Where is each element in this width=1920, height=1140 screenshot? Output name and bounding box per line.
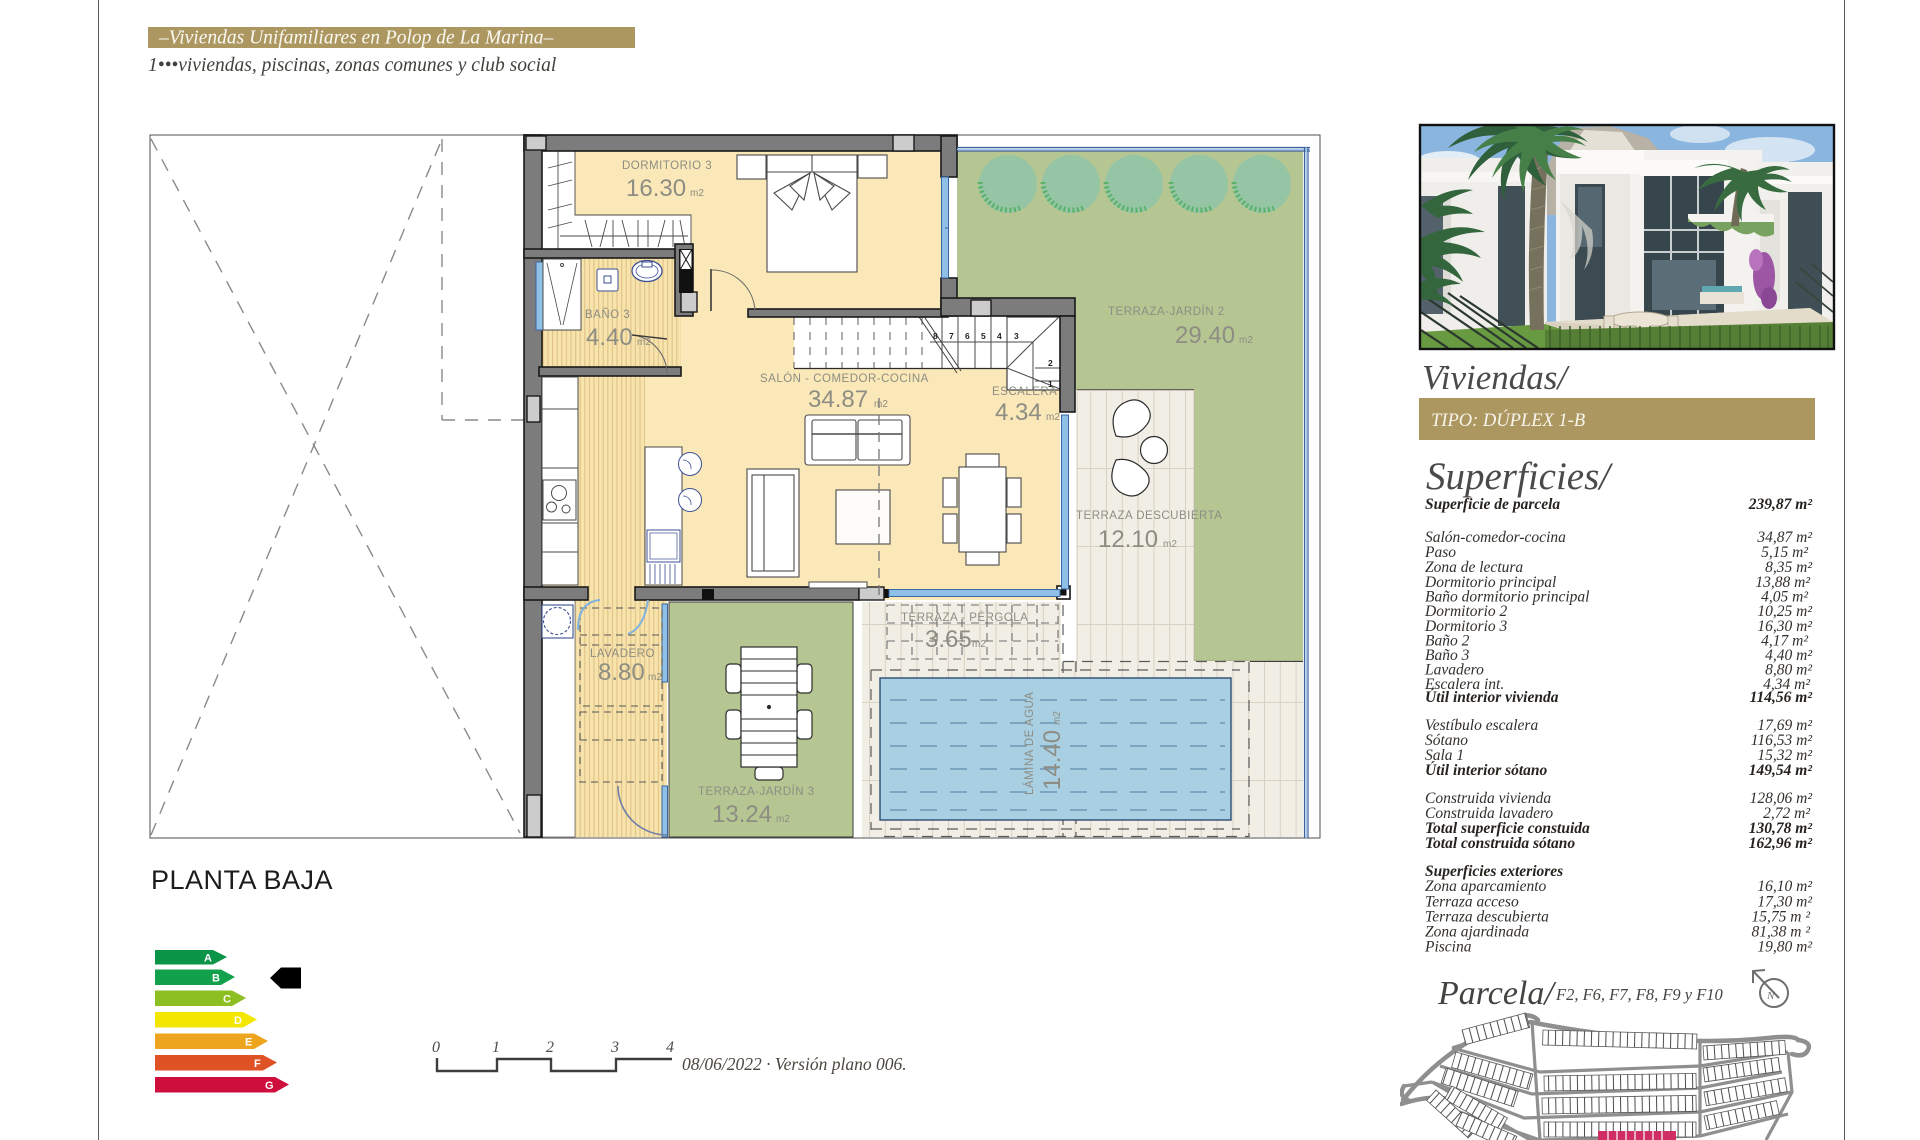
svg-text:13.24: 13.24	[712, 801, 772, 828]
svg-text:Viviendas/: Viviendas/	[1422, 358, 1570, 397]
svg-text:m2: m2	[690, 188, 704, 199]
svg-text:1: 1	[492, 1039, 500, 1056]
svg-text:Zona aparcamiento: Zona aparcamiento	[1425, 878, 1547, 895]
svg-text:2: 2	[1048, 358, 1053, 368]
svg-text:F: F	[254, 1058, 261, 1070]
svg-text:Útil interior sótano: Útil interior sótano	[1425, 762, 1548, 779]
svg-text:34.87: 34.87	[808, 386, 868, 413]
svg-text:3: 3	[610, 1039, 619, 1056]
svg-text:TERRAZA - PÉRGOLA: TERRAZA - PÉRGOLA	[901, 611, 1028, 624]
svg-text:Total construida sótano: Total construida sótano	[1425, 835, 1575, 852]
svg-text:239,87 m²: 239,87 m²	[1748, 496, 1813, 513]
svg-text:149,54 m²: 149,54 m²	[1749, 762, 1813, 779]
svg-text:F2, F6, F7, F8, F9 y F10: F2, F6, F7, F8, F9 y F10	[1555, 985, 1724, 1004]
svg-text:BAÑO 3: BAÑO 3	[585, 308, 630, 321]
svg-text:Útil interior vivienda: Útil interior vivienda	[1425, 689, 1559, 706]
svg-text:A: A	[204, 953, 212, 965]
svg-text:6: 6	[965, 331, 970, 341]
svg-text:PLANTA BAJA: PLANTA BAJA	[151, 865, 333, 895]
svg-text:16,10 m²: 16,10 m²	[1757, 878, 1812, 895]
svg-text:TERRAZA DESCUBIERTA: TERRAZA DESCUBIERTA	[1076, 510, 1222, 522]
svg-text:5: 5	[981, 331, 986, 341]
svg-text:DORMITORIO 3: DORMITORIO 3	[622, 160, 712, 172]
svg-text:TERRAZA-JARDÍN 3: TERRAZA-JARDÍN 3	[698, 785, 815, 798]
svg-text:3: 3	[1014, 331, 1019, 341]
svg-text:4: 4	[666, 1039, 674, 1056]
svg-text:m2: m2	[874, 399, 888, 410]
svg-text:2: 2	[546, 1039, 554, 1056]
svg-text:TERRAZA-JARDÍN 2: TERRAZA-JARDÍN 2	[1108, 305, 1225, 318]
svg-text:C: C	[223, 994, 231, 1006]
svg-text:7: 7	[949, 331, 954, 341]
svg-text:m2: m2	[776, 814, 790, 825]
svg-text:4: 4	[997, 331, 1002, 341]
svg-text:m2: m2	[648, 672, 662, 683]
svg-text:12.10: 12.10	[1098, 526, 1158, 553]
svg-text:m2: m2	[1052, 711, 1063, 725]
svg-text:ESCALERA: ESCALERA	[992, 386, 1057, 398]
svg-text:4.40: 4.40	[586, 324, 633, 351]
svg-text:D: D	[234, 1015, 242, 1027]
svg-text:Superficie de parcela: Superficie de parcela	[1425, 496, 1560, 513]
svg-text:08/06/2022 · Versión plano 006: 08/06/2022 · Versión plano 006.	[682, 1054, 907, 1074]
svg-text:162,96 m²: 162,96 m²	[1749, 835, 1813, 852]
svg-text:1•••viviendas, piscinas, zonas: 1•••viviendas, piscinas, zonas comunes y…	[148, 55, 556, 76]
svg-text:m2: m2	[1163, 539, 1177, 550]
svg-text:Superficies/: Superficies/	[1426, 455, 1613, 498]
svg-text:E: E	[245, 1037, 252, 1049]
svg-text:29.40: 29.40	[1175, 322, 1235, 349]
svg-text:Parcela/: Parcela/	[1437, 975, 1557, 1012]
svg-text:LÁMINA DE AGUA: LÁMINA DE AGUA	[1023, 691, 1036, 795]
svg-text:8: 8	[933, 331, 938, 341]
svg-text:4.34: 4.34	[995, 399, 1042, 426]
svg-text:16.30: 16.30	[626, 175, 686, 202]
svg-text:0: 0	[432, 1039, 440, 1056]
svg-text:TIPO: DÚPLEX 1-B: TIPO: DÚPLEX 1-B	[1431, 409, 1585, 431]
svg-text:SALÓN - COMEDOR-COCINA: SALÓN - COMEDOR-COCINA	[760, 372, 929, 385]
svg-text:114,56 m²: 114,56 m²	[1750, 689, 1813, 706]
svg-text:14.40: 14.40	[1039, 730, 1066, 790]
svg-text:m2: m2	[1046, 412, 1060, 423]
svg-text:m2: m2	[637, 337, 651, 348]
svg-text:m2: m2	[1239, 335, 1253, 346]
svg-text:B: B	[212, 973, 220, 985]
svg-text:m2: m2	[972, 639, 986, 650]
svg-text:G: G	[265, 1080, 274, 1092]
svg-text:19,80 m²: 19,80 m²	[1757, 939, 1812, 956]
svg-text:8.80: 8.80	[598, 659, 645, 686]
svg-text:Piscina: Piscina	[1424, 939, 1472, 956]
svg-text:N: N	[1766, 990, 1775, 1002]
svg-text:–Viviendas Unifamiliares en Po: –Viviendas Unifamiliares en Polop de La …	[158, 28, 554, 49]
svg-text:3.65: 3.65	[925, 626, 972, 653]
